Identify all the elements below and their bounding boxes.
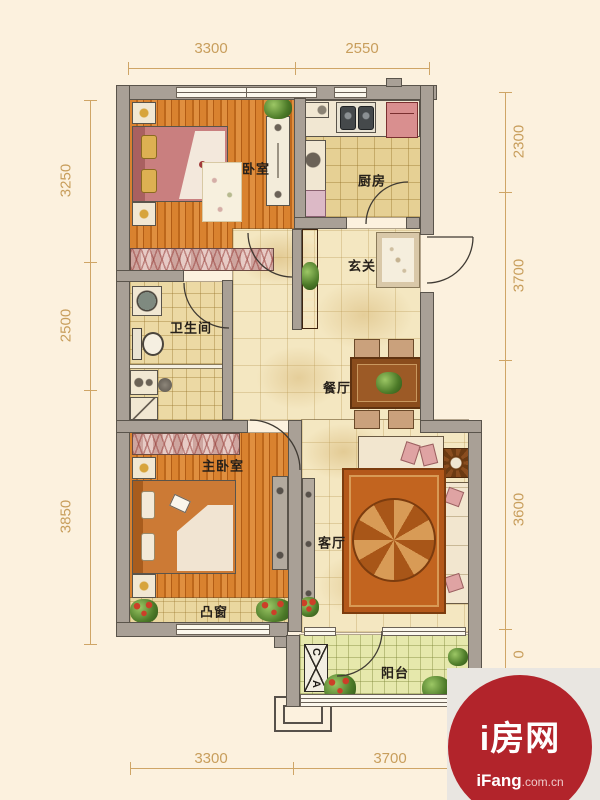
room-label-bathroom: 卫生间 (170, 318, 212, 337)
ifang-logo-site: iFang.com.cn (448, 771, 592, 791)
room-label-bedroom: 卧室 (242, 159, 270, 178)
room-label-master: 主卧室 (202, 456, 244, 475)
bedroom-window (246, 87, 317, 98)
bedroom-door-arc (248, 233, 292, 277)
master-door-arc (250, 420, 300, 470)
room-label-kitchen: 厨房 (358, 171, 386, 190)
room-label-dining: 餐厅 (323, 378, 351, 397)
room-label-bay: 凸窗 (200, 602, 228, 621)
entry-door-arc (427, 237, 473, 283)
ifang-site-name: iFang (476, 771, 521, 790)
room-label-living: 客厅 (318, 533, 346, 552)
balcony-window-left (304, 627, 336, 636)
ifang-site-domain: .com.cn (522, 775, 564, 789)
bedroom-window (176, 87, 247, 98)
ifang-logo-title: i房网 (448, 711, 592, 760)
room-label-balcony: 阳台 (381, 663, 409, 682)
ifang-logo-circle: i房网 iFang.com.cn (448, 675, 592, 800)
ifang-watermark: i房网 iFang.com.cn (447, 668, 600, 800)
bay-window-glass (176, 624, 270, 635)
kitchen-window (334, 87, 367, 98)
balcony-window-right (382, 627, 466, 636)
floor-plan-image: C A 卧室 厨房 玄关 卫生间 (0, 0, 600, 800)
balcony-window-bottom (300, 694, 468, 707)
room-label-entry: 玄关 (348, 256, 376, 275)
balcony-door-arc (337, 631, 382, 676)
